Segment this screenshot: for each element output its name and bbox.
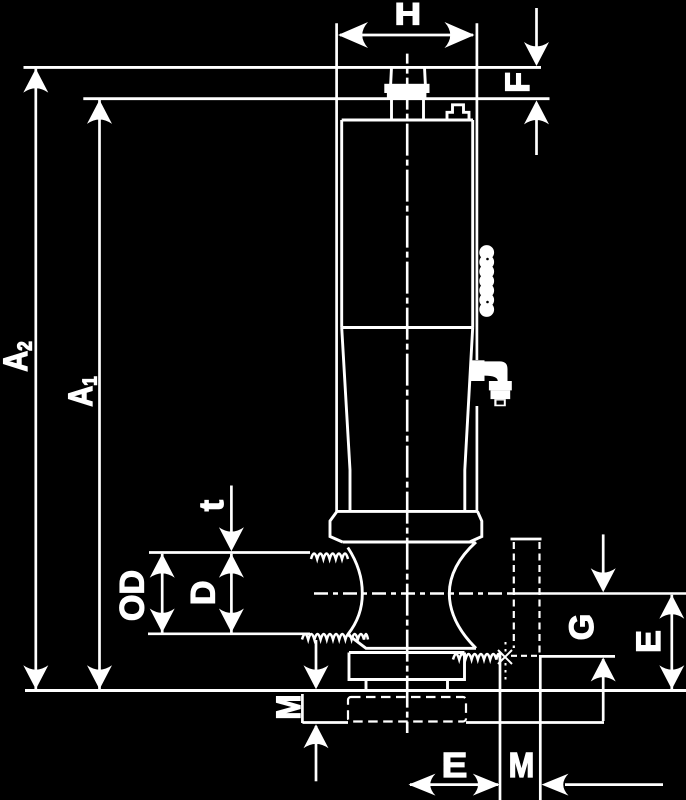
svg-text:E: E (630, 630, 668, 653)
svg-text:D: D (184, 581, 222, 606)
svg-text:M: M (270, 695, 308, 720)
svg-text:F: F (499, 72, 537, 93)
svg-text:E: E (442, 746, 468, 785)
svg-text:H: H (395, 0, 421, 32)
svg-text:t: t (193, 500, 231, 511)
svg-text:OD: OD (114, 570, 152, 621)
svg-text:G: G (563, 614, 601, 640)
svg-text:M: M (509, 746, 535, 785)
